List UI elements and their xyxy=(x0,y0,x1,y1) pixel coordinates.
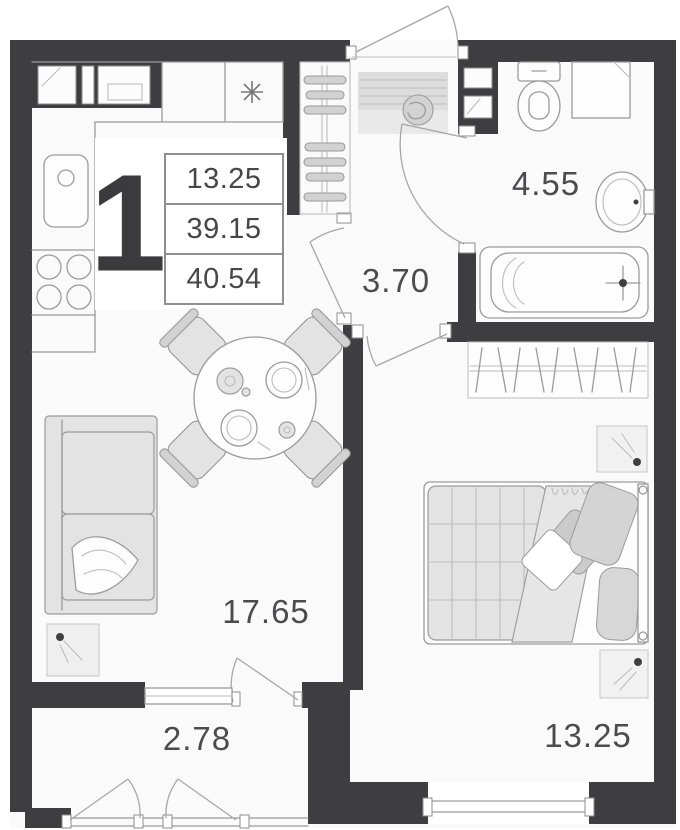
bedroom-wardrobe-icon xyxy=(468,342,648,398)
floor-plan-drawing xyxy=(0,0,680,830)
room-area-label-living-kitchen: 17.65 xyxy=(222,593,310,631)
nightstand-lamp-icon xyxy=(597,426,647,472)
light-asterisk-icon xyxy=(241,81,263,103)
dining-table-icon xyxy=(194,337,316,459)
room-area-label-bedroom: 13.25 xyxy=(544,717,632,755)
room-area-label-balcony: 2.78 xyxy=(163,720,231,758)
kitchen-sink-icon xyxy=(44,155,88,227)
area-table-row: 13.25 xyxy=(164,153,284,205)
room-area-label-bathroom: 4.55 xyxy=(512,165,580,203)
bedroom-window-icon xyxy=(423,782,594,824)
area-table-row: 39.15 xyxy=(164,203,284,255)
bathroom-cabinet xyxy=(572,62,630,118)
pillow-icon xyxy=(596,567,641,642)
floor-lamp-icon xyxy=(47,624,99,676)
area-table-row: 40.54 xyxy=(164,253,284,305)
stool-icon xyxy=(403,95,433,125)
floor-plan: 1 13.25 39.15 40.54 4.55 3.70 17.65 2.78… xyxy=(0,0,680,830)
room-area-label-hallway: 3.70 xyxy=(362,262,430,300)
area-table: 13.25 39.15 40.54 xyxy=(164,153,284,305)
nightstand-lamp-icon xyxy=(600,650,648,698)
apartment-number: 1 xyxy=(90,145,167,304)
balcony-window-icon xyxy=(145,688,232,704)
bathtub-icon xyxy=(480,247,648,318)
sofa-icon xyxy=(45,416,157,614)
headboard-icon xyxy=(638,484,648,642)
toilet-icon xyxy=(518,62,560,131)
bed-icon xyxy=(424,479,648,644)
cup-icon xyxy=(279,422,295,438)
